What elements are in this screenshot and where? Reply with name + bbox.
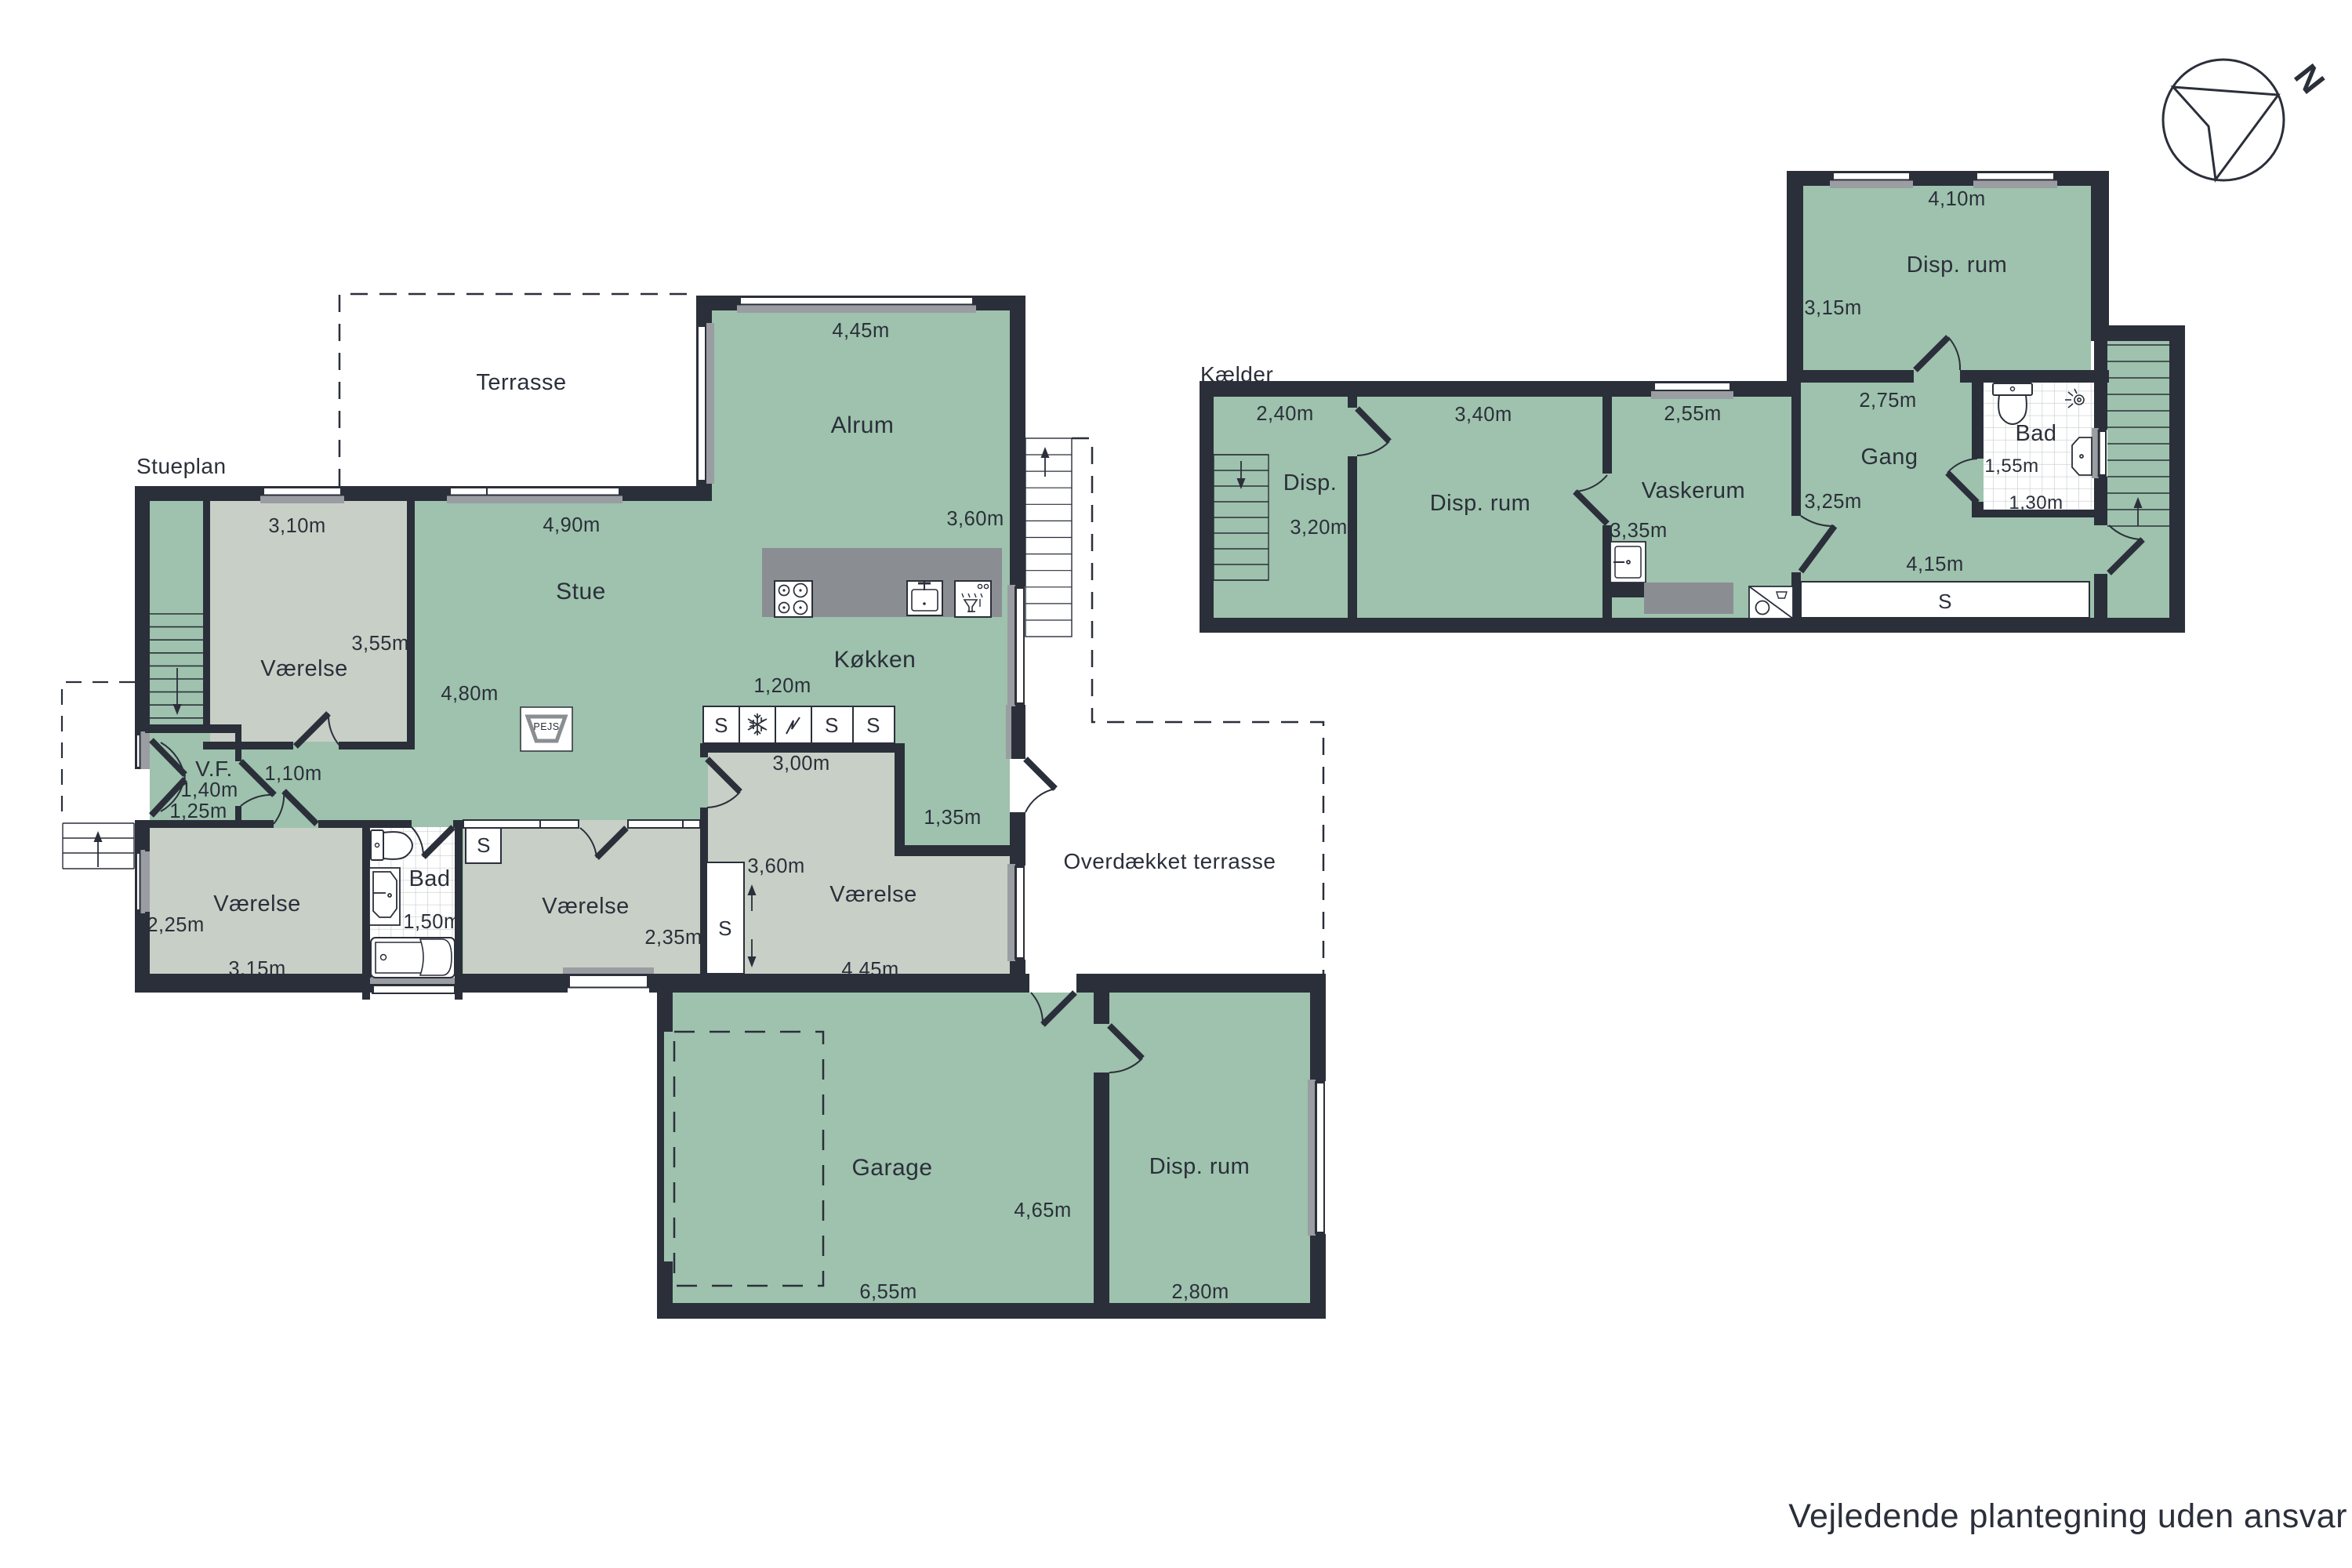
svg-text:Gang: Gang [1861,445,1918,470]
svg-text:3,00m: 3,00m [772,753,829,775]
svg-text:3,60m: 3,60m [946,508,1004,530]
svg-text:2,55m: 2,55m [1664,403,1721,425]
svg-text:6,55m: 6,55m [859,1281,916,1303]
svg-text:1,55m: 1,55m [1984,456,2038,477]
svg-text:3,60m: 3,60m [747,855,804,877]
svg-text:Garage: Garage [851,1155,932,1181]
svg-text:1,20m: 1,20m [753,675,811,697]
svg-text:S: S [718,916,732,940]
svg-text:2,35m: 2,35m [644,927,702,949]
svg-text:S: S [1938,590,1952,613]
svg-text:S: S [866,713,880,737]
svg-text:Disp.: Disp. [1283,470,1338,495]
svg-text:4,80m: 4,80m [441,683,498,705]
svg-text:1,10m: 1,10m [264,763,321,785]
svg-text:Køkken: Køkken [834,647,916,673]
svg-text:4,45m: 4,45m [832,320,889,342]
svg-text:S: S [714,713,728,737]
svg-text:4,65m: 4,65m [1014,1200,1071,1221]
svg-text:3,15m: 3,15m [1804,297,1861,319]
svg-text:1,50m: 1,50m [403,911,460,933]
svg-text:Bad: Bad [2015,421,2056,446]
svg-text:1,30m: 1,30m [2009,492,2063,514]
svg-text:3,25m: 3,25m [1804,491,1861,513]
svg-text:3,20m: 3,20m [1290,517,1347,539]
svg-text:Disp. rum: Disp. rum [1149,1154,1250,1179]
svg-text:Vejledende plantegning uden an: Vejledende plantegning uden ansvar [1788,1497,2347,1535]
svg-text:3,10m: 3,10m [268,515,325,537]
svg-text:3,40m: 3,40m [1454,404,1512,426]
svg-text:S: S [477,833,491,857]
svg-text:1,25m: 1,25m [169,800,227,822]
svg-text:2,25m: 2,25m [147,914,204,936]
svg-text:Terrasse: Terrasse [476,370,566,395]
svg-text:Vaskerum: Vaskerum [1642,478,1745,503]
svg-text:Værelse: Værelse [542,894,630,919]
svg-text:S: S [825,713,839,737]
svg-text:3,55m: 3,55m [351,633,408,655]
svg-text:Disp. rum: Disp. rum [1907,252,2008,278]
svg-text:3,15m: 3,15m [228,958,285,980]
svg-text:1,40m: 1,40m [180,779,238,801]
svg-text:PEJS: PEJS [533,721,559,732]
svg-text:Stue: Stue [556,579,606,604]
svg-text:Bad: Bad [408,866,450,891]
svg-text:1,35m: 1,35m [924,807,981,829]
svg-text:V.F.: V.F. [195,757,233,781]
svg-text:4,15m: 4,15m [1906,554,1963,575]
svg-text:4,10m: 4,10m [1928,188,1985,210]
svg-text:2,80m: 2,80m [1171,1281,1229,1303]
svg-text:Alrum: Alrum [831,412,895,438]
svg-text:Stueplan: Stueplan [136,454,227,478]
svg-text:2,40m: 2,40m [1256,403,1313,425]
svg-text:Overdækket terrasse: Overdækket terrasse [1064,849,1276,873]
svg-text:Værelse: Værelse [829,882,917,907]
svg-text:Værelse: Værelse [260,656,348,681]
svg-text:Værelse: Værelse [213,891,301,916]
svg-text:3,35m: 3,35m [1610,520,1667,542]
svg-text:4,90m: 4,90m [543,514,600,536]
svg-text:Kælder: Kælder [1200,362,1273,387]
svg-text:2,75m: 2,75m [1859,390,1916,412]
svg-text:4,45m: 4,45m [841,959,898,981]
svg-text:Disp. rum: Disp. rum [1430,491,1531,516]
